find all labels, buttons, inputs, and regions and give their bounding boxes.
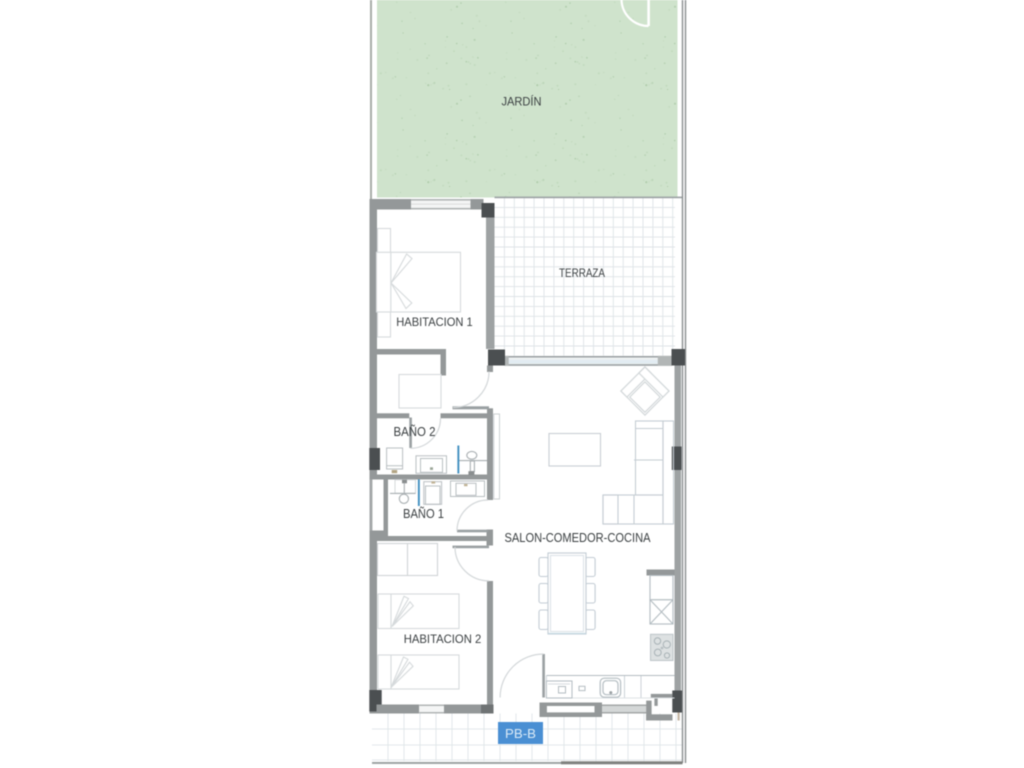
svg-text:BAÑO 1: BAÑO 1 xyxy=(403,506,444,521)
svg-text:TERRAZA: TERRAZA xyxy=(559,266,605,280)
svg-text:SALON-COMEDOR-COCINA: SALON-COMEDOR-COCINA xyxy=(505,530,651,545)
svg-text:PB-B: PB-B xyxy=(505,726,536,741)
svg-text:HABITACION 2: HABITACION 2 xyxy=(404,632,482,646)
svg-text:HABITACION 1: HABITACION 1 xyxy=(396,315,473,329)
svg-text:BAÑO 2: BAÑO 2 xyxy=(394,424,436,439)
svg-text:JARDÍN: JARDÍN xyxy=(502,96,542,109)
